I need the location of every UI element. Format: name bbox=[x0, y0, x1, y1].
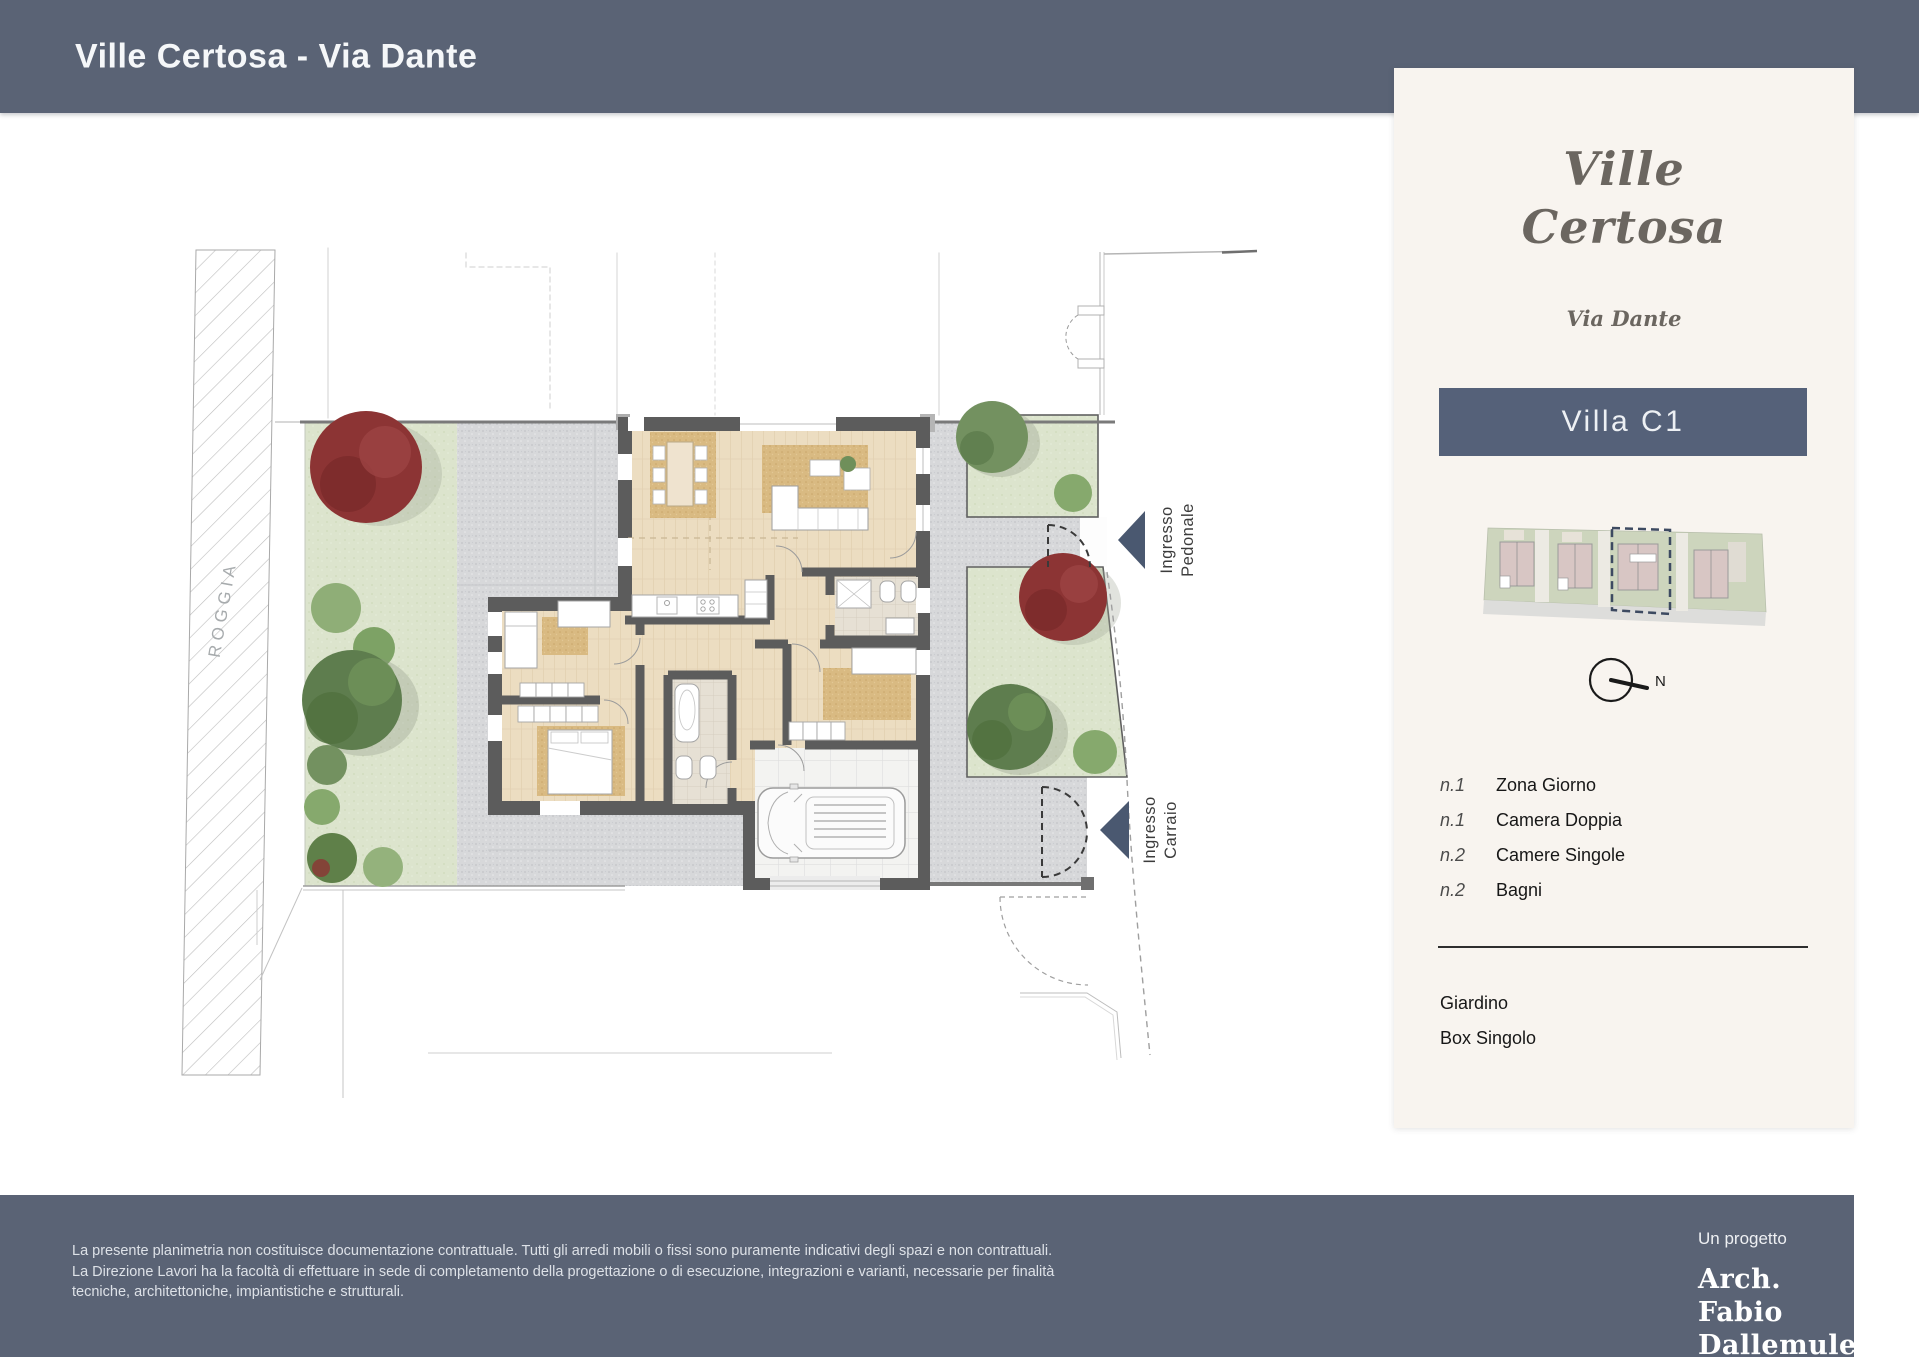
dining-set bbox=[650, 432, 716, 518]
footer-bar: La presente planimetria non costituisce … bbox=[0, 1195, 1854, 1357]
context-outline-topright bbox=[1066, 251, 1257, 415]
extras-list: Giardino Box Singolo bbox=[1440, 986, 1536, 1056]
site-plan: ROGGIA bbox=[180, 240, 1260, 1100]
credit-block: Un progetto Arch. Fabio Dallemule bbox=[1698, 1229, 1857, 1357]
entrance-driveway-label-1: Ingresso bbox=[1141, 796, 1159, 863]
entrance-driveway-label-2: Carraio bbox=[1162, 801, 1180, 859]
room-list: n.1 Zona Giorno n.1 Camera Doppia n.2 Ca… bbox=[1440, 768, 1820, 908]
room-qty: n.1 bbox=[1440, 810, 1496, 831]
page: Ville Certosa - Via Dante bbox=[0, 0, 1919, 1357]
room-label: Camere Singole bbox=[1496, 845, 1625, 866]
extra-item: Giardino bbox=[1440, 986, 1536, 1021]
room-label: Bagni bbox=[1496, 880, 1542, 901]
room-list-item: n.1 Camera Doppia bbox=[1440, 803, 1820, 838]
canal-roggia: ROGGIA bbox=[182, 250, 302, 1075]
context-lines-top bbox=[328, 248, 939, 418]
architect-name-line-1: Arch. Fabio bbox=[1698, 1263, 1857, 1329]
entrance-pedestrian-label-2: Pedonale bbox=[1179, 503, 1197, 577]
project-logo: Ville Certosa bbox=[1394, 140, 1854, 256]
compass-icon: N bbox=[1554, 643, 1694, 718]
room-qty: n.2 bbox=[1440, 880, 1496, 901]
room-qty: n.1 bbox=[1440, 775, 1496, 796]
unit-banner: Villa C1 bbox=[1439, 388, 1807, 456]
living-set bbox=[762, 445, 870, 530]
site-plan-drawing: ROGGIA bbox=[180, 240, 1260, 1100]
entrance-pedestrian-label-1: Ingresso bbox=[1158, 506, 1176, 573]
compass-north-label: N bbox=[1655, 673, 1666, 690]
logo-line-1: Ville bbox=[1394, 140, 1854, 198]
logo-subtitle: Via Dante bbox=[1394, 306, 1854, 331]
logo-line-2: Certosa bbox=[1394, 198, 1854, 256]
page-title: Ville Certosa - Via Dante bbox=[75, 37, 477, 76]
info-panel: Ville Certosa Via Dante Villa C1 bbox=[1394, 68, 1854, 1128]
room-list-item: n.2 Bagni bbox=[1440, 873, 1820, 908]
location-minimap bbox=[1480, 518, 1770, 636]
credit-intro: Un progetto bbox=[1698, 1229, 1857, 1249]
divider bbox=[1438, 946, 1808, 948]
entrance-driveway: Ingresso Carraio bbox=[1100, 796, 1180, 863]
architect-name-line-2: Dallemule bbox=[1698, 1329, 1857, 1357]
extra-item: Box Singolo bbox=[1440, 1021, 1536, 1056]
room-label: Camera Doppia bbox=[1496, 810, 1622, 831]
disclaimer-text: La presente planimetria non costituisce … bbox=[72, 1241, 1057, 1303]
room-qty: n.2 bbox=[1440, 845, 1496, 866]
room-list-item: n.2 Camere Singole bbox=[1440, 838, 1820, 873]
car bbox=[758, 784, 905, 862]
arrow-left-icon bbox=[1118, 511, 1145, 569]
room-list-item: n.1 Zona Giorno bbox=[1440, 768, 1820, 803]
entrance-pedestrian: Ingresso Pedonale bbox=[1118, 503, 1197, 577]
context-lines-bottom bbox=[257, 890, 1121, 1098]
arrow-left-icon bbox=[1100, 801, 1129, 859]
room-label: Zona Giorno bbox=[1496, 775, 1596, 796]
